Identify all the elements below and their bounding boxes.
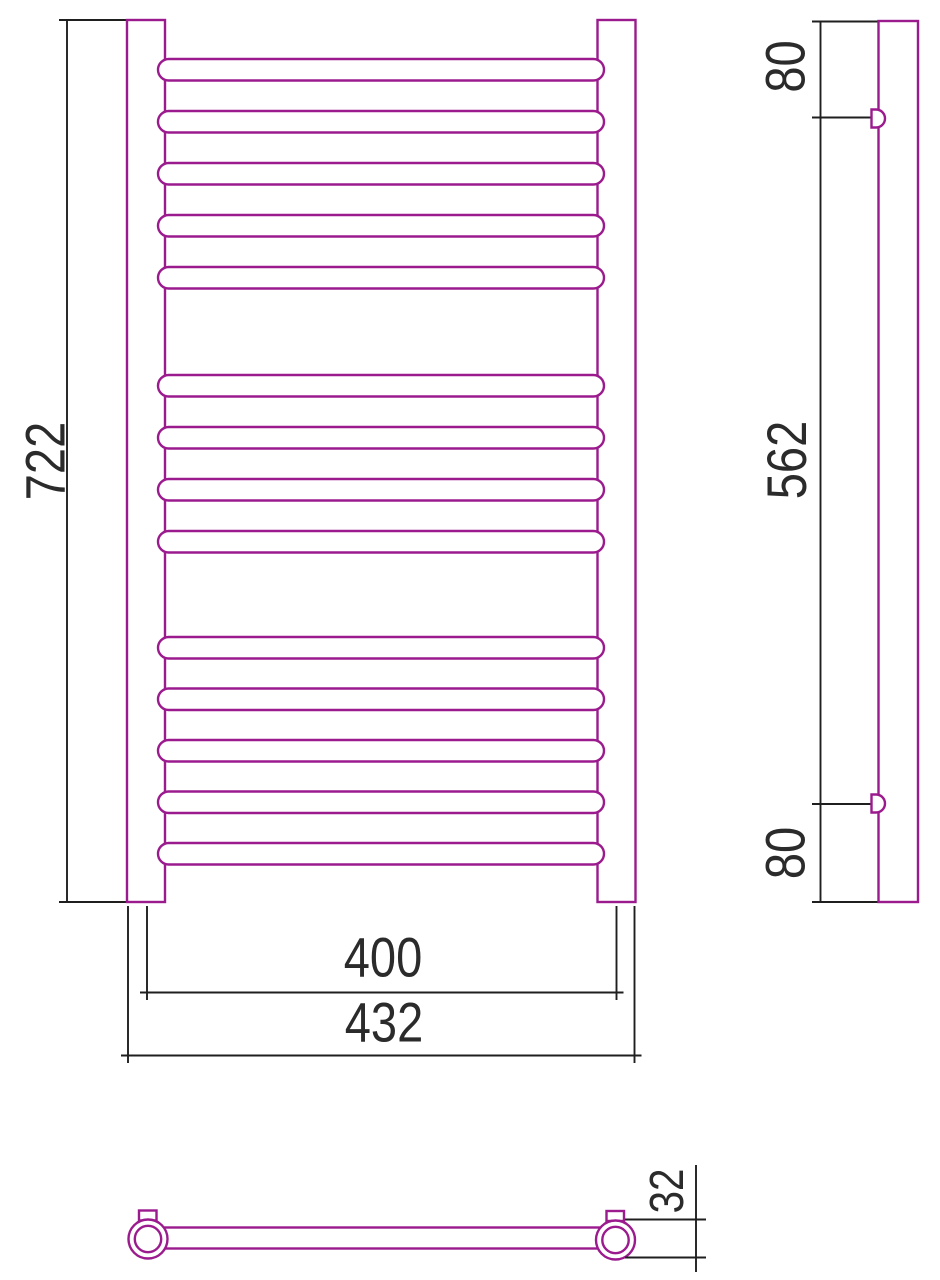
- rung: [158, 637, 604, 659]
- rung-group-top: [158, 59, 604, 289]
- depth-dimension-label: 32: [641, 1169, 694, 1214]
- rung: [158, 215, 604, 237]
- top-offset-dimension-label: 80: [754, 40, 817, 92]
- height-dimension-label: 722: [14, 422, 77, 500]
- rung: [158, 267, 604, 289]
- lower-wall-bracket: [872, 795, 886, 813]
- rung: [158, 740, 604, 762]
- side-profile-bar: [879, 21, 919, 902]
- side-view: 80 562 80: [754, 21, 918, 902]
- rung-group-middle: [158, 375, 604, 553]
- towel-rail-drawing: 722: [0, 0, 940, 1280]
- rung: [158, 531, 604, 553]
- rung: [158, 689, 604, 711]
- technical-drawing-page: 722: [0, 0, 940, 1280]
- rung-group-bottom: [158, 637, 604, 865]
- left-post: [127, 20, 165, 902]
- rung: [158, 843, 604, 865]
- rung: [158, 59, 604, 81]
- rung: [158, 163, 604, 185]
- rung: [158, 479, 604, 501]
- front-view: 722: [14, 20, 642, 1063]
- rung: [158, 111, 604, 133]
- depth-dimension: 32: [625, 1165, 706, 1272]
- right-post: [598, 20, 636, 902]
- rung: [158, 375, 604, 397]
- plan-rung-bar: [162, 1228, 602, 1249]
- rung: [158, 792, 604, 814]
- rung: [158, 427, 604, 449]
- center-width-dimension: 400: [140, 906, 624, 1000]
- upper-wall-bracket: [872, 110, 886, 128]
- center-width-dimension-label: 400: [344, 926, 422, 989]
- top-view: 32: [129, 1165, 707, 1272]
- bracket-spacing-dimension-label: 562: [755, 421, 818, 499]
- overall-width-dimension-label: 432: [345, 991, 423, 1054]
- height-dimension: 722: [14, 20, 127, 902]
- bottom-offset-dimension-label: 80: [754, 827, 817, 879]
